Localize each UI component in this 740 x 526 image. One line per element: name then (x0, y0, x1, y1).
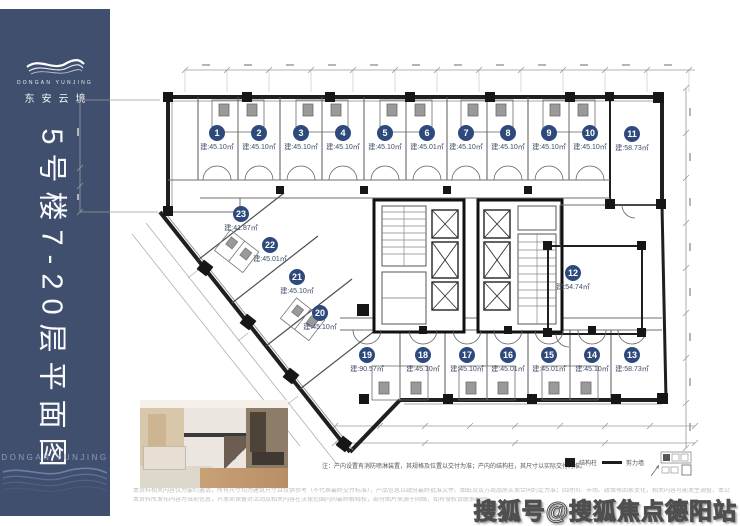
unit-number: 20 (312, 305, 328, 321)
unit-23: 23建:41.87㎡ (206, 206, 276, 233)
unit-number: 22 (262, 237, 278, 253)
unit-area: 建:45.01㎡ (235, 254, 305, 264)
unit-22: 22建:45.01㎡ (235, 237, 305, 264)
unit-area: 建:58.73㎡ (597, 143, 667, 153)
unit-number: 14 (584, 347, 600, 363)
unit-20: 20建:45.10㎡ (285, 305, 355, 332)
unit-number: 3 (293, 125, 309, 141)
legend-column-label: 结构柱 (579, 458, 597, 467)
page: { "brand": {"name_en": "DONGAN YUNJING",… (0, 0, 740, 523)
unit-19: 19建:90.57㎡ (332, 347, 402, 374)
interior-photo (140, 400, 288, 488)
dimension-line-top (182, 67, 695, 73)
unit-number: 11 (624, 126, 640, 142)
unit-area: 建:45.10㎡ (262, 286, 332, 296)
legend-wall-label: 剪力墙 (626, 458, 644, 467)
wall-symbol (602, 461, 622, 464)
unit-number: 15 (541, 347, 557, 363)
unit-number: 21 (289, 269, 305, 285)
watermark: 搜狐号@搜狐焦点德阳站 (474, 492, 737, 526)
unit-number: 2 (251, 125, 267, 141)
key-plan-icon (648, 450, 694, 480)
unit-number: 7 (458, 125, 474, 141)
plan-note: 注：产内设置有消防喷淋装置，其规格及位置以交付为准；产内的结构柱，其尺寸以实际交… (322, 461, 586, 470)
floor-plan-drawing (0, 0, 740, 523)
unit-number: 23 (233, 206, 249, 222)
column-symbol (565, 458, 575, 467)
unit-number: 10 (582, 125, 598, 141)
legend-wall: 剪力墙 (602, 458, 644, 467)
unit-21: 21建:45.10㎡ (262, 269, 332, 296)
dimension-line-left (77, 97, 160, 215)
unit-12: 12建:54.74㎡ (538, 265, 608, 292)
unit-number: 5 (377, 125, 393, 141)
unit-number: 19 (359, 347, 375, 363)
unit-number: 16 (500, 347, 516, 363)
unit-number: 1 (209, 125, 225, 141)
unit-number: 4 (335, 125, 351, 141)
dimension-line-right (683, 85, 689, 451)
unit-area: 建:41.87㎡ (206, 223, 276, 233)
core-left (374, 200, 464, 332)
unit-area: 建:90.57㎡ (332, 364, 402, 374)
legend-column: 结构柱 (565, 458, 597, 467)
unit-area: 建:45.10㎡ (285, 322, 355, 332)
unit-number: 17 (459, 347, 475, 363)
unit-11: 11建:58.73㎡ (597, 126, 667, 153)
unit-area: 建:54.74㎡ (538, 282, 608, 292)
unit-number: 12 (565, 265, 581, 281)
unit-number: 18 (415, 347, 431, 363)
dimension-line-bottom (332, 423, 698, 446)
